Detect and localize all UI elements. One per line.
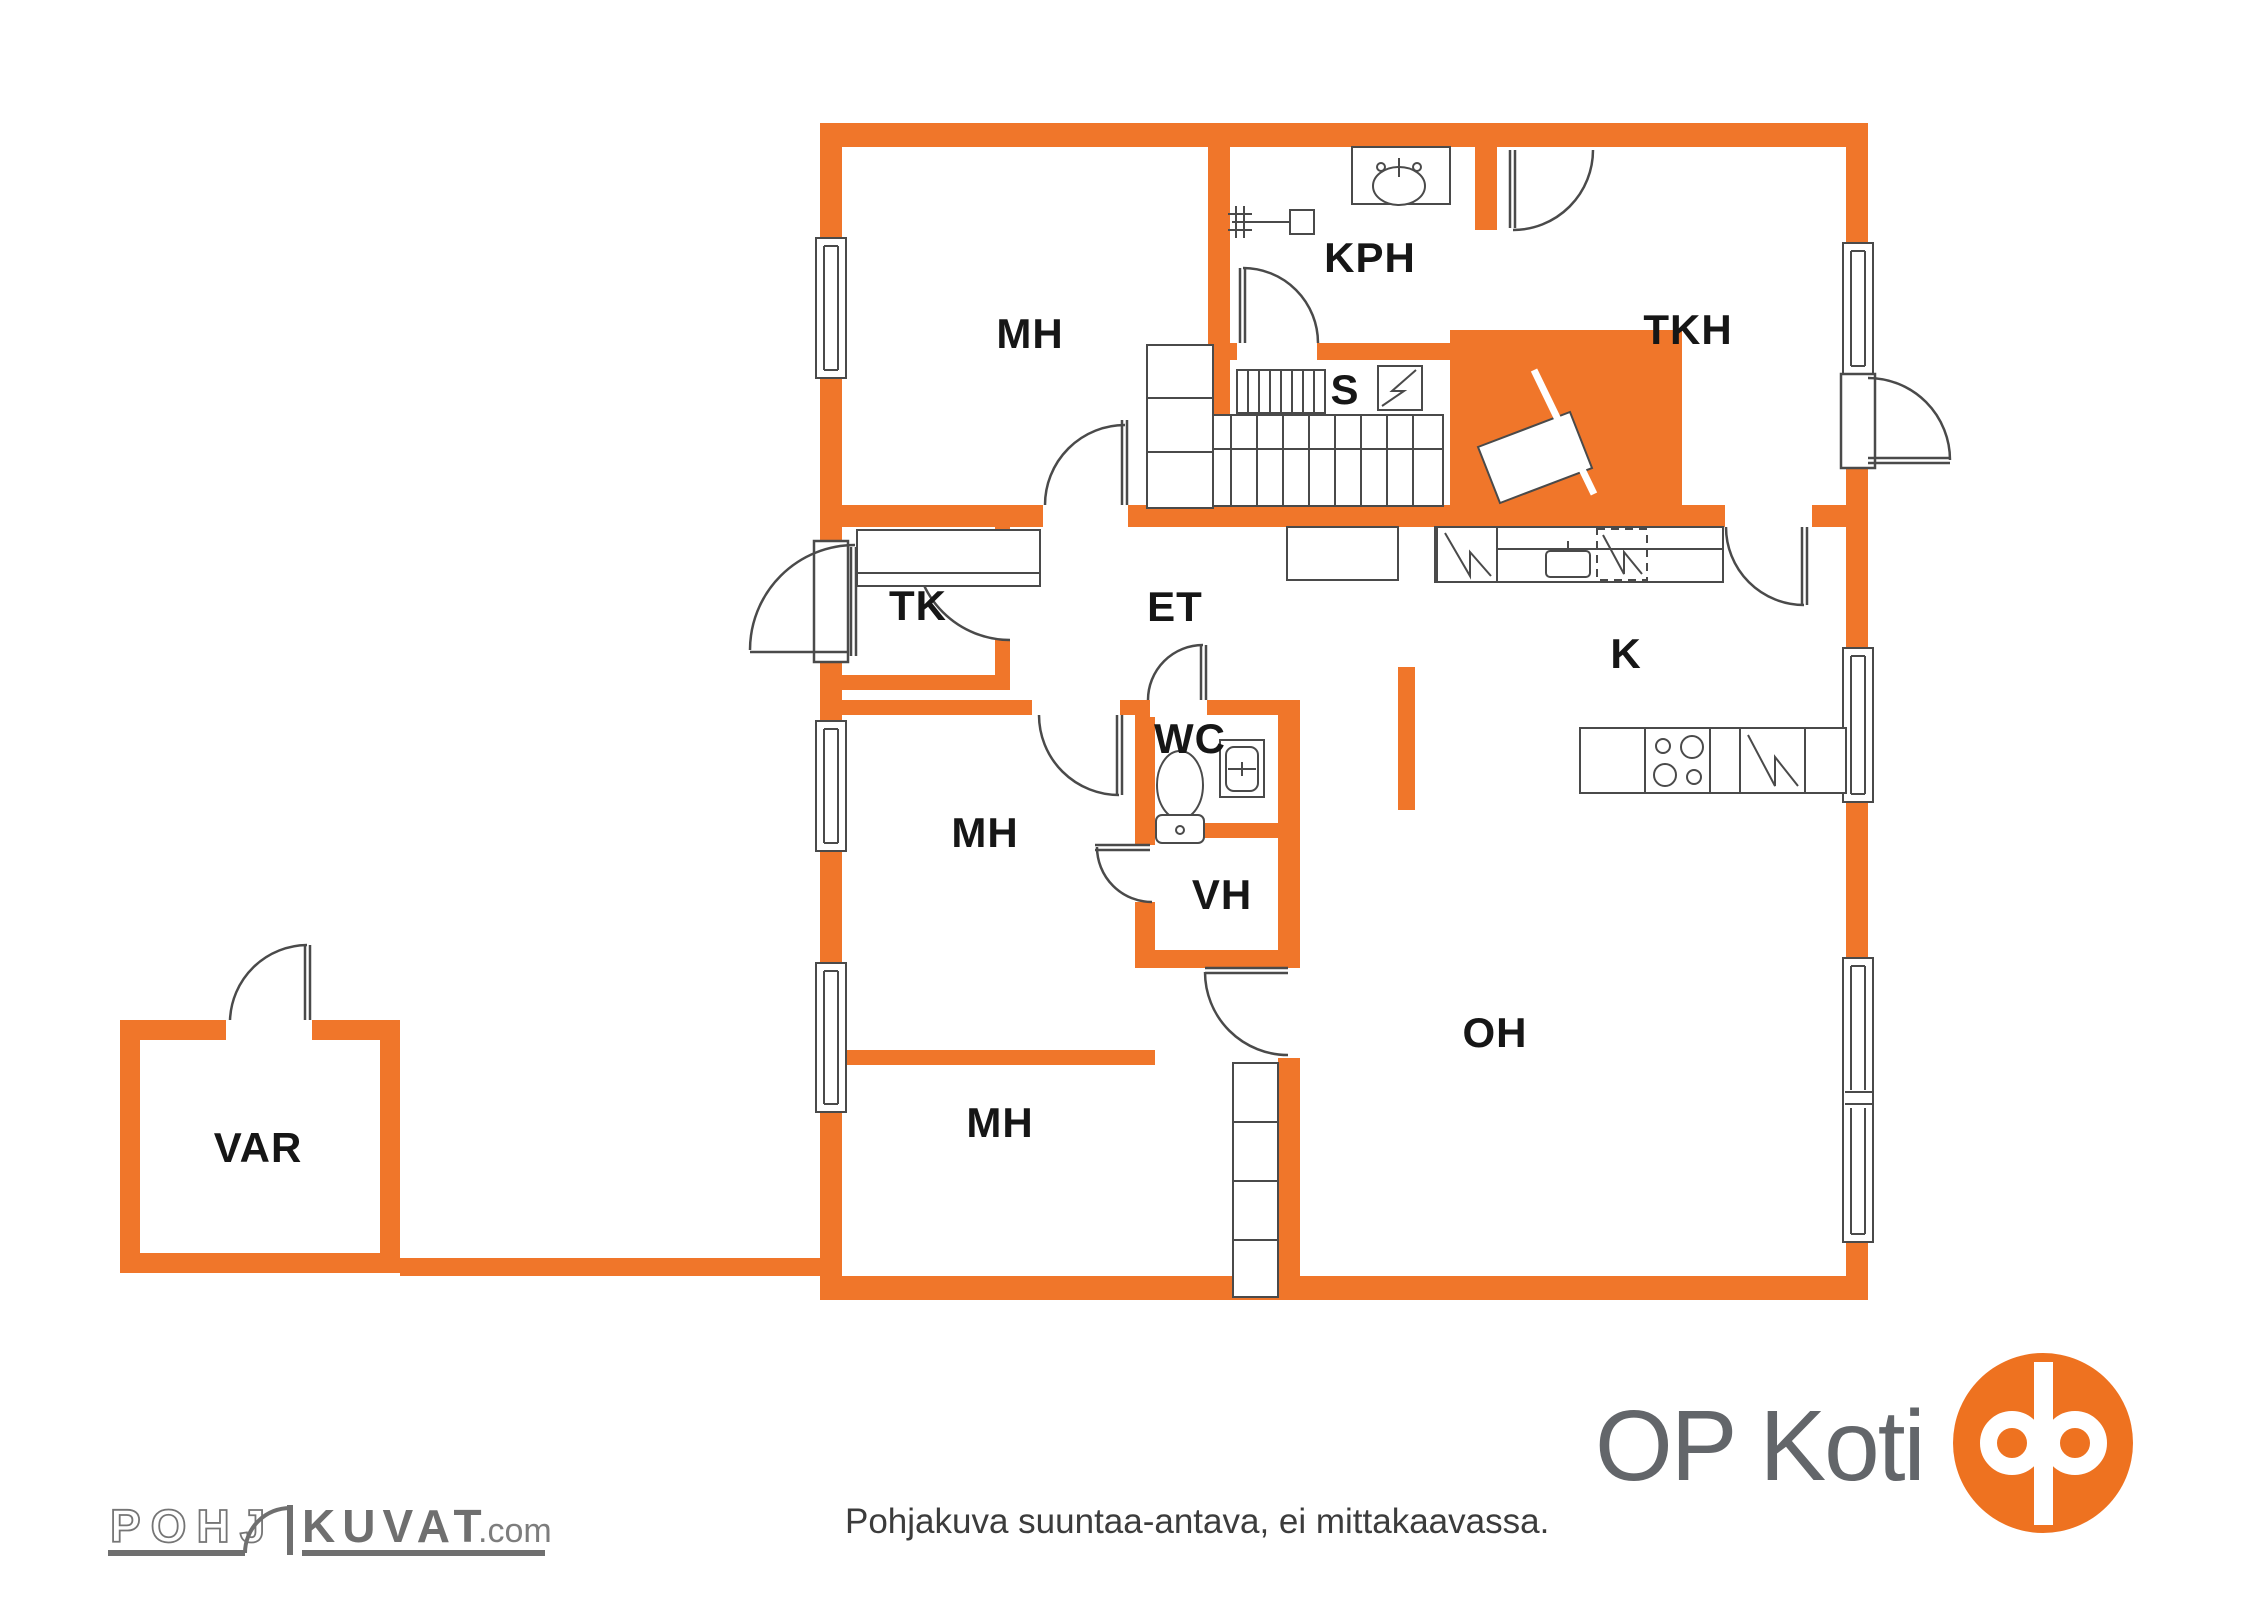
- closet-et: [1287, 527, 1398, 580]
- door-tkh-kitchen: [1726, 527, 1807, 605]
- shower-icon: [1228, 206, 1314, 238]
- room-label-mh-mid: MH: [951, 809, 1018, 856]
- window-mh-bottom-left: [816, 963, 846, 1112]
- room-label-tkh: TKH: [1643, 306, 1732, 353]
- room-label-mh-top: MH: [996, 310, 1063, 357]
- kitchen-counter-bottom: [1580, 728, 1846, 793]
- door-tk-exterior: [750, 541, 856, 662]
- room-label-var: VAR: [214, 1124, 303, 1171]
- window-tkh-right: [1843, 243, 1873, 374]
- closet-mh-bottom: [1233, 1063, 1278, 1297]
- closet-mh-top: [1147, 345, 1213, 508]
- door-tkh-exterior: [1841, 374, 1950, 468]
- floorplan-drawing: MH KPH TKH S TK ET K WC MH VH MH OH VAR …: [0, 0, 2262, 1600]
- room-label-kph: KPH: [1324, 234, 1416, 281]
- sauna-stove-icon: [1378, 366, 1422, 410]
- room-label-mh-bottom: MH: [966, 1099, 1033, 1146]
- pohjakuvat-logo-suffix: .com: [478, 1512, 552, 1550]
- closet-tk: [857, 530, 1040, 586]
- door-mh-top: [1045, 420, 1127, 505]
- window-mh-mid-left: [816, 721, 846, 851]
- sink-kph: [1352, 147, 1450, 205]
- door-mh-mid: [1039, 715, 1122, 795]
- room-label-et: ET: [1147, 583, 1203, 630]
- toilet-icon: [1156, 751, 1204, 843]
- window-mh-top-left: [816, 238, 846, 378]
- kitchen-counter-top: [1435, 527, 1723, 582]
- op-koti-wordmark: OP Koti: [1595, 1390, 1924, 1502]
- stairs: [1205, 415, 1443, 506]
- door-kph-sauna: [1240, 268, 1318, 343]
- door-kph-tkh: [1510, 150, 1593, 230]
- room-label-wc: WC: [1154, 715, 1226, 762]
- doors: [230, 150, 1950, 1055]
- sauna-benches: [1237, 370, 1325, 413]
- room-label-s: S: [1330, 366, 1359, 413]
- room-label-oh: OH: [1463, 1009, 1528, 1056]
- room-label-k: K: [1610, 630, 1641, 677]
- floorplan-page: MH KPH TKH S TK ET K WC MH VH MH OH VAR …: [0, 0, 2262, 1600]
- disclaimer-text: Pohjakuva suuntaa-antava, ei mittakaavas…: [845, 1502, 1549, 1541]
- window-k-right: [1843, 648, 1873, 802]
- door-wc: [1148, 645, 1206, 700]
- pohjakuvat-logo-part1: POHJ: [110, 1500, 275, 1552]
- room-label-tk: TK: [889, 582, 947, 629]
- op-logo-icon: [1953, 1353, 2133, 1533]
- room-label-vh: VH: [1192, 871, 1252, 918]
- pohjakuvat-logo: POHJ KUVAT .com: [108, 1500, 552, 1555]
- door-mh-bottom: [1205, 968, 1288, 1055]
- door-var: [230, 945, 310, 1020]
- pohjakuvat-logo-part2: KUVAT: [302, 1500, 489, 1552]
- window-oh-right: [1843, 958, 1873, 1242]
- sink-wc: [1220, 740, 1264, 797]
- op-koti-logo: OP Koti: [1595, 1353, 2133, 1533]
